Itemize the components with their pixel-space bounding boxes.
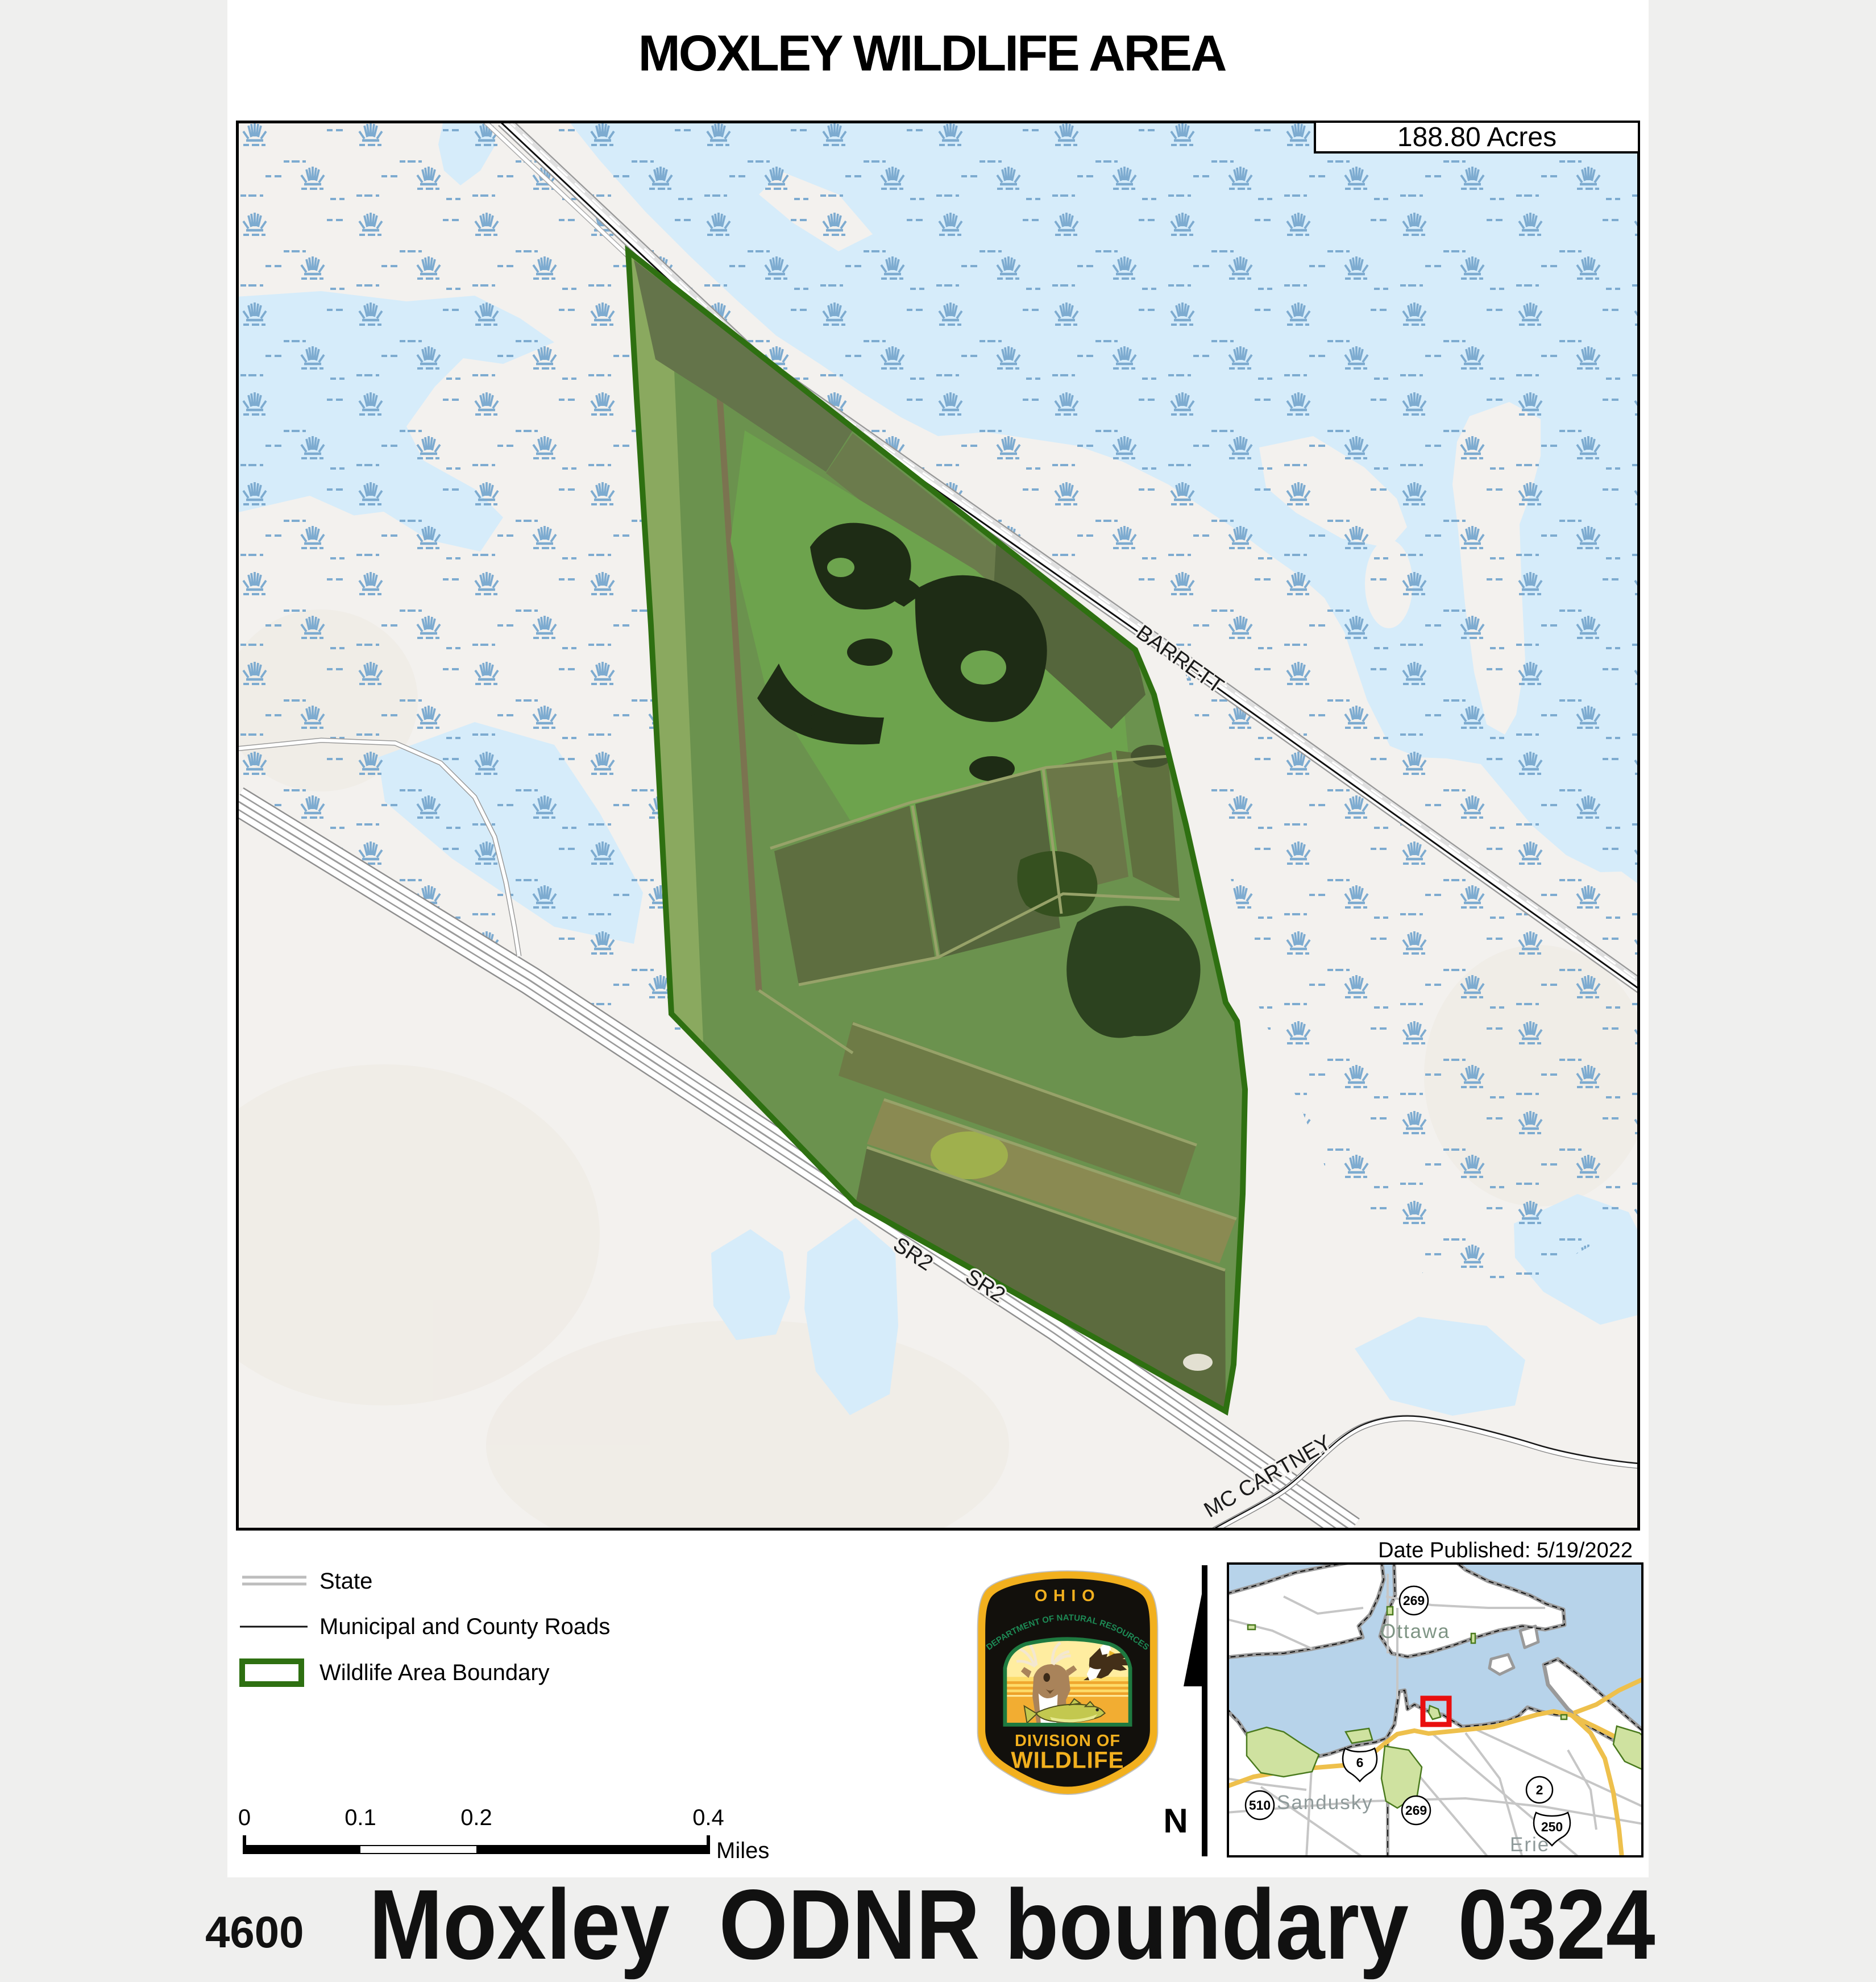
svg-text:Sandusky: Sandusky (1277, 1792, 1373, 1814)
svg-text:250: 250 (1541, 1819, 1563, 1834)
svg-text:269: 269 (1403, 1593, 1425, 1608)
svg-text:6: 6 (1356, 1755, 1364, 1770)
svg-text:N: N (1163, 1802, 1188, 1840)
svg-text:0.2: 0.2 (460, 1805, 492, 1830)
svg-text:WILDLIFE: WILDLIFE (1011, 1747, 1124, 1773)
svg-text:0.4: 0.4 (692, 1805, 724, 1830)
svg-text:0.1: 0.1 (345, 1805, 376, 1830)
svg-text:269: 269 (1405, 1803, 1427, 1818)
svg-text:0: 0 (238, 1805, 251, 1830)
svg-text:Miles: Miles (716, 1838, 769, 1863)
svg-text:Ottawa: Ottawa (1380, 1620, 1450, 1643)
svg-text:510: 510 (1249, 1798, 1271, 1813)
svg-text:OHIO: OHIO (1035, 1587, 1101, 1605)
svg-text:2: 2 (1536, 1782, 1543, 1797)
